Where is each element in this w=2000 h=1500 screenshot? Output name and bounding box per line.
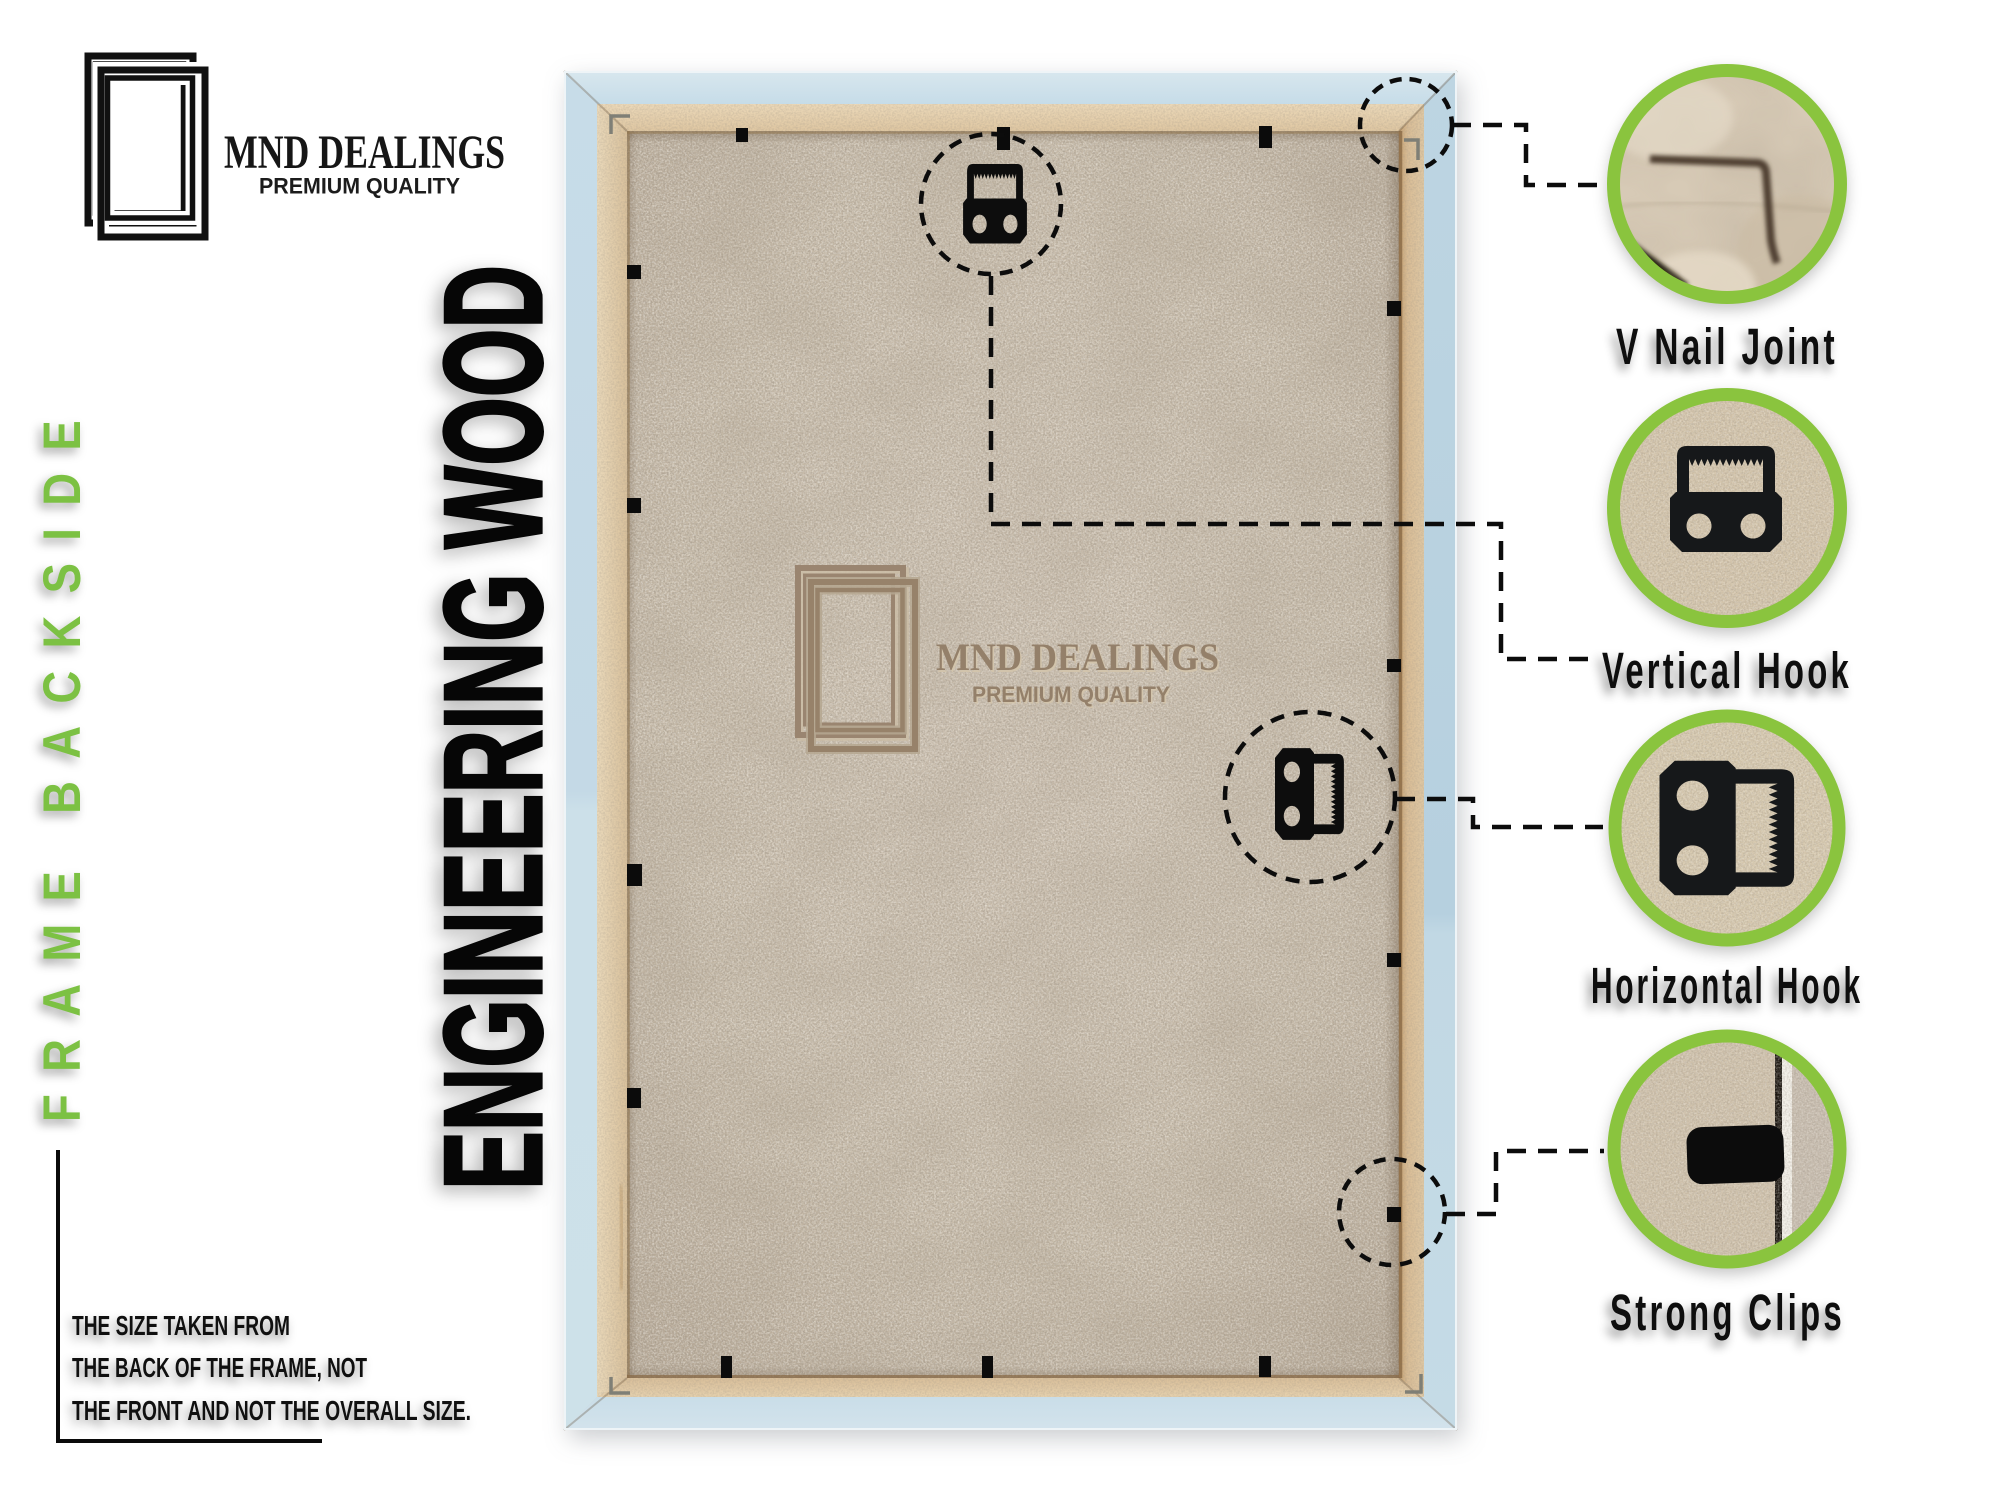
svg-text:Vertical Hook: Vertical Hook — [1602, 642, 1852, 699]
svg-text:Strong Clips: Strong Clips — [1610, 1284, 1845, 1341]
svg-text:Horizontal Hook: Horizontal Hook — [1591, 957, 1863, 1014]
svg-text:PREMIUM QUALITY: PREMIUM QUALITY — [259, 174, 460, 199]
svg-text:PREMIUM QUALITY: PREMIUM QUALITY — [972, 682, 1170, 707]
svg-text:THE FRONT AND NOT THE OVERALL: THE FRONT AND NOT THE OVERALL SIZE. — [72, 1395, 471, 1426]
svg-text:ENGINEERING WOOD: ENGINEERING WOOD — [416, 265, 571, 1190]
svg-text:THE SIZE TAKEN FROM: THE SIZE TAKEN FROM — [72, 1310, 290, 1341]
svg-text:MND DEALINGS: MND DEALINGS — [224, 126, 505, 179]
svg-text:V Nail Joint: V Nail Joint — [1616, 318, 1838, 375]
svg-text:THE BACK OF THE FRAME, NOT: THE BACK OF THE FRAME, NOT — [72, 1352, 367, 1383]
svg-text:MND DEALINGS: MND DEALINGS — [936, 636, 1219, 679]
svg-text:FRAME BACKSIDE: FRAME BACKSIDE — [33, 398, 92, 1122]
